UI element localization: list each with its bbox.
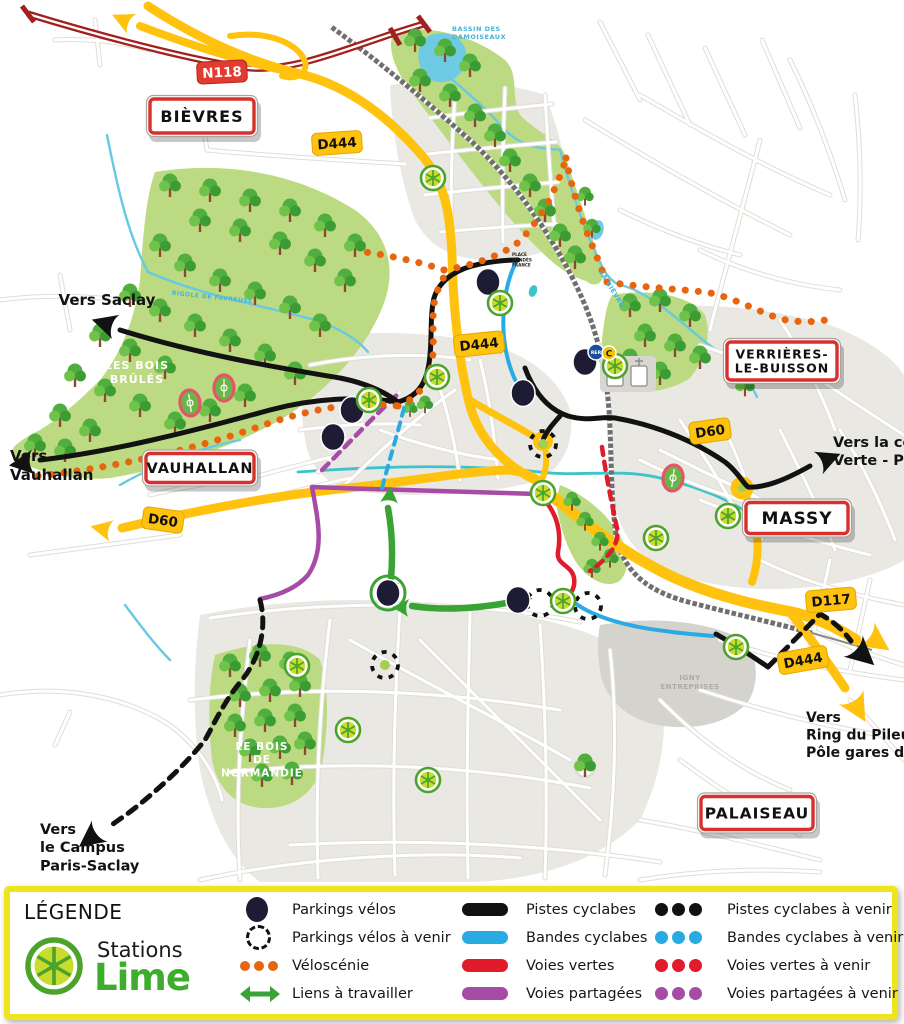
parking-dashed-circle-icon — [246, 925, 271, 950]
departmental-road-sign: D60 — [141, 506, 185, 533]
map-label: Vers Saclay — [59, 291, 156, 309]
lime-logo-icon — [24, 936, 84, 996]
map-label: LES BOISBRÛLÉS — [105, 359, 169, 386]
svg-text:FRANCE: FRANCE — [512, 263, 531, 268]
map-label: BASSIN DESDAMOISEAUX — [452, 25, 506, 41]
lime-station-icon — [488, 291, 512, 315]
svg-text:VAUHALLAN: VAUHALLAN — [147, 461, 254, 477]
stadium-icon — [214, 375, 234, 401]
legend-item-veloscenie: Véloscénie — [240, 955, 451, 976]
town-sign: VERRIÈRES-LE-BUISSON — [724, 339, 845, 390]
svg-text:RER: RER — [591, 350, 602, 356]
lime-station-icon — [644, 526, 668, 550]
departmental-road-sign: D117 — [805, 587, 857, 613]
svg-text:Verte - Paris: Verte - Paris — [833, 453, 904, 469]
bike-parking-dot — [511, 380, 535, 407]
legend-item-pistes: Pistes cyclabes — [462, 899, 647, 920]
svg-text:PALAISEAU: PALAISEAU — [705, 805, 809, 823]
svg-text:Paris-Saclay: Paris-Saclay — [40, 858, 140, 874]
departmental-road-sign: D444 — [453, 330, 505, 357]
red-bar-icon — [462, 959, 508, 972]
lime-station-icon — [551, 589, 575, 613]
svg-text:ENTREPRISES: ENTREPRISES — [660, 683, 719, 691]
lime-station-icon — [716, 504, 740, 528]
svg-text:LE-BUISSON: LE-BUISSON — [735, 361, 830, 376]
svg-text:le Campus: le Campus — [40, 840, 125, 856]
svg-text:VERRIÈRES-: VERRIÈRES- — [735, 347, 828, 362]
legend-item-voies-vertes-future: Voies vertes à venir — [655, 955, 903, 976]
legend-column-points: Parkings vélos Parkings vélos à venir Vé… — [240, 899, 451, 1004]
svg-text:NORMANDIE: NORMANDIE — [221, 767, 303, 779]
red-dots-icon — [655, 959, 702, 972]
svg-text:BIÈVRES: BIÈVRES — [160, 107, 243, 126]
svg-text:IGNY: IGNY — [679, 674, 701, 682]
parking-dot-icon — [246, 897, 268, 922]
departmental-road-sign: D444 — [311, 130, 362, 155]
map-canvas: RERCN118D444D444D60D60D117D444BIÈVRESVAU… — [0, 0, 904, 886]
svg-text:PLACE: PLACE — [512, 252, 527, 257]
town-sign: PALAISEAU — [698, 793, 821, 839]
legend-item-bandes-future: Bandes cyclabes à venir — [655, 927, 903, 948]
lime-station-icon — [357, 388, 381, 412]
national-road-sign: N118 — [196, 60, 247, 85]
purple-dots-icon — [655, 987, 702, 1000]
svg-text:Pôle gares de Massy: Pôle gares de Massy — [806, 745, 904, 761]
legend-panel: LÉGENDE Stations Lime Parkings vélos Par… — [4, 886, 898, 1020]
legend-item-parkings: Parkings vélos — [240, 899, 451, 920]
tree-icon — [64, 364, 86, 388]
svg-text:Vers: Vers — [10, 447, 47, 465]
legend-item-bandes: Bandes cyclabes — [462, 927, 647, 948]
svg-text:Vers la coulée: Vers la coulée — [833, 435, 904, 451]
town-sign: MASSY — [743, 499, 856, 543]
purple-bar-icon — [462, 987, 508, 1000]
bike-parking-dot — [321, 424, 345, 451]
svg-text:Vauhallan: Vauhallan — [10, 466, 93, 484]
roundabout-center — [380, 660, 390, 670]
bike-parking-dot — [506, 587, 530, 614]
legend-column-future: Pistes cyclabes à venir Bandes cyclabes … — [655, 899, 903, 1004]
legend-item-voies-vertes: Voies vertes — [462, 955, 647, 976]
svg-text:DE: DE — [253, 754, 271, 766]
lime-station-icon — [416, 768, 440, 792]
svg-text:Vers Saclay: Vers Saclay — [59, 291, 156, 309]
roundabout-center — [538, 439, 548, 449]
lime-station-icon — [724, 635, 748, 659]
orange-dots-icon — [240, 961, 278, 971]
bike-parking-dot — [376, 580, 400, 607]
legend-item-voies-partagees-future: Voies partagées à venir — [655, 983, 903, 1004]
svg-text:Vers: Vers — [40, 822, 76, 838]
black-bar-icon — [462, 903, 508, 916]
legend-item-parkings-future: Parkings vélos à venir — [240, 927, 451, 948]
svg-text:MENDÈS: MENDÈS — [512, 257, 532, 262]
blue-bar-icon — [462, 931, 508, 944]
svg-text:D117: D117 — [811, 591, 852, 610]
svg-text:BASSIN DES: BASSIN DES — [452, 25, 501, 33]
green-double-arrow-icon — [240, 985, 280, 1003]
lime-station-icon — [531, 481, 555, 505]
legend-item-pistes-future: Pistes cyclabes à venir — [655, 899, 903, 920]
blue-dots-icon — [655, 931, 702, 944]
svg-text:N118: N118 — [202, 64, 242, 82]
town-sign: VAUHALLAN — [143, 450, 262, 492]
svg-text:Ring du Pileu: Ring du Pileu — [806, 728, 904, 744]
svg-text:DAMOISEAUX: DAMOISEAUX — [452, 33, 506, 41]
lime-station-icon — [425, 365, 449, 389]
legend-item-liens: Liens à travailler — [240, 983, 451, 1004]
svg-text:MASSY: MASSY — [761, 509, 832, 529]
lime-brand: Stations Lime — [24, 936, 190, 996]
bike-plan-poster: RERCN118D444D444D60D60D117D444BIÈVRESVAU… — [0, 0, 904, 1024]
lime-station-icon — [285, 654, 309, 678]
svg-text:LE BOIS: LE BOIS — [236, 741, 289, 753]
legend-item-voies-partagees: Voies partagées — [462, 983, 647, 1004]
lime-label: Lime — [94, 962, 190, 993]
svg-text:D444: D444 — [317, 135, 357, 154]
svg-text:C: C — [606, 349, 613, 359]
lime-station-icon — [336, 718, 360, 742]
svg-text:BRÛLÉS: BRÛLÉS — [110, 373, 164, 386]
map-label: VersRing du PileuPôle gares de Massy — [806, 710, 904, 761]
legend-column-lines: Pistes cyclabes Bandes cyclabes Voies ve… — [462, 899, 647, 1004]
town-sign: BIÈVRES — [147, 96, 262, 143]
svg-text:LES BOIS: LES BOIS — [105, 359, 169, 372]
black-dots-icon — [655, 903, 702, 916]
svg-text:Vers: Vers — [806, 710, 841, 726]
rer-c-badge: RERC — [588, 344, 616, 360]
legend-title: LÉGENDE — [24, 900, 122, 924]
lime-station-icon — [421, 166, 445, 190]
